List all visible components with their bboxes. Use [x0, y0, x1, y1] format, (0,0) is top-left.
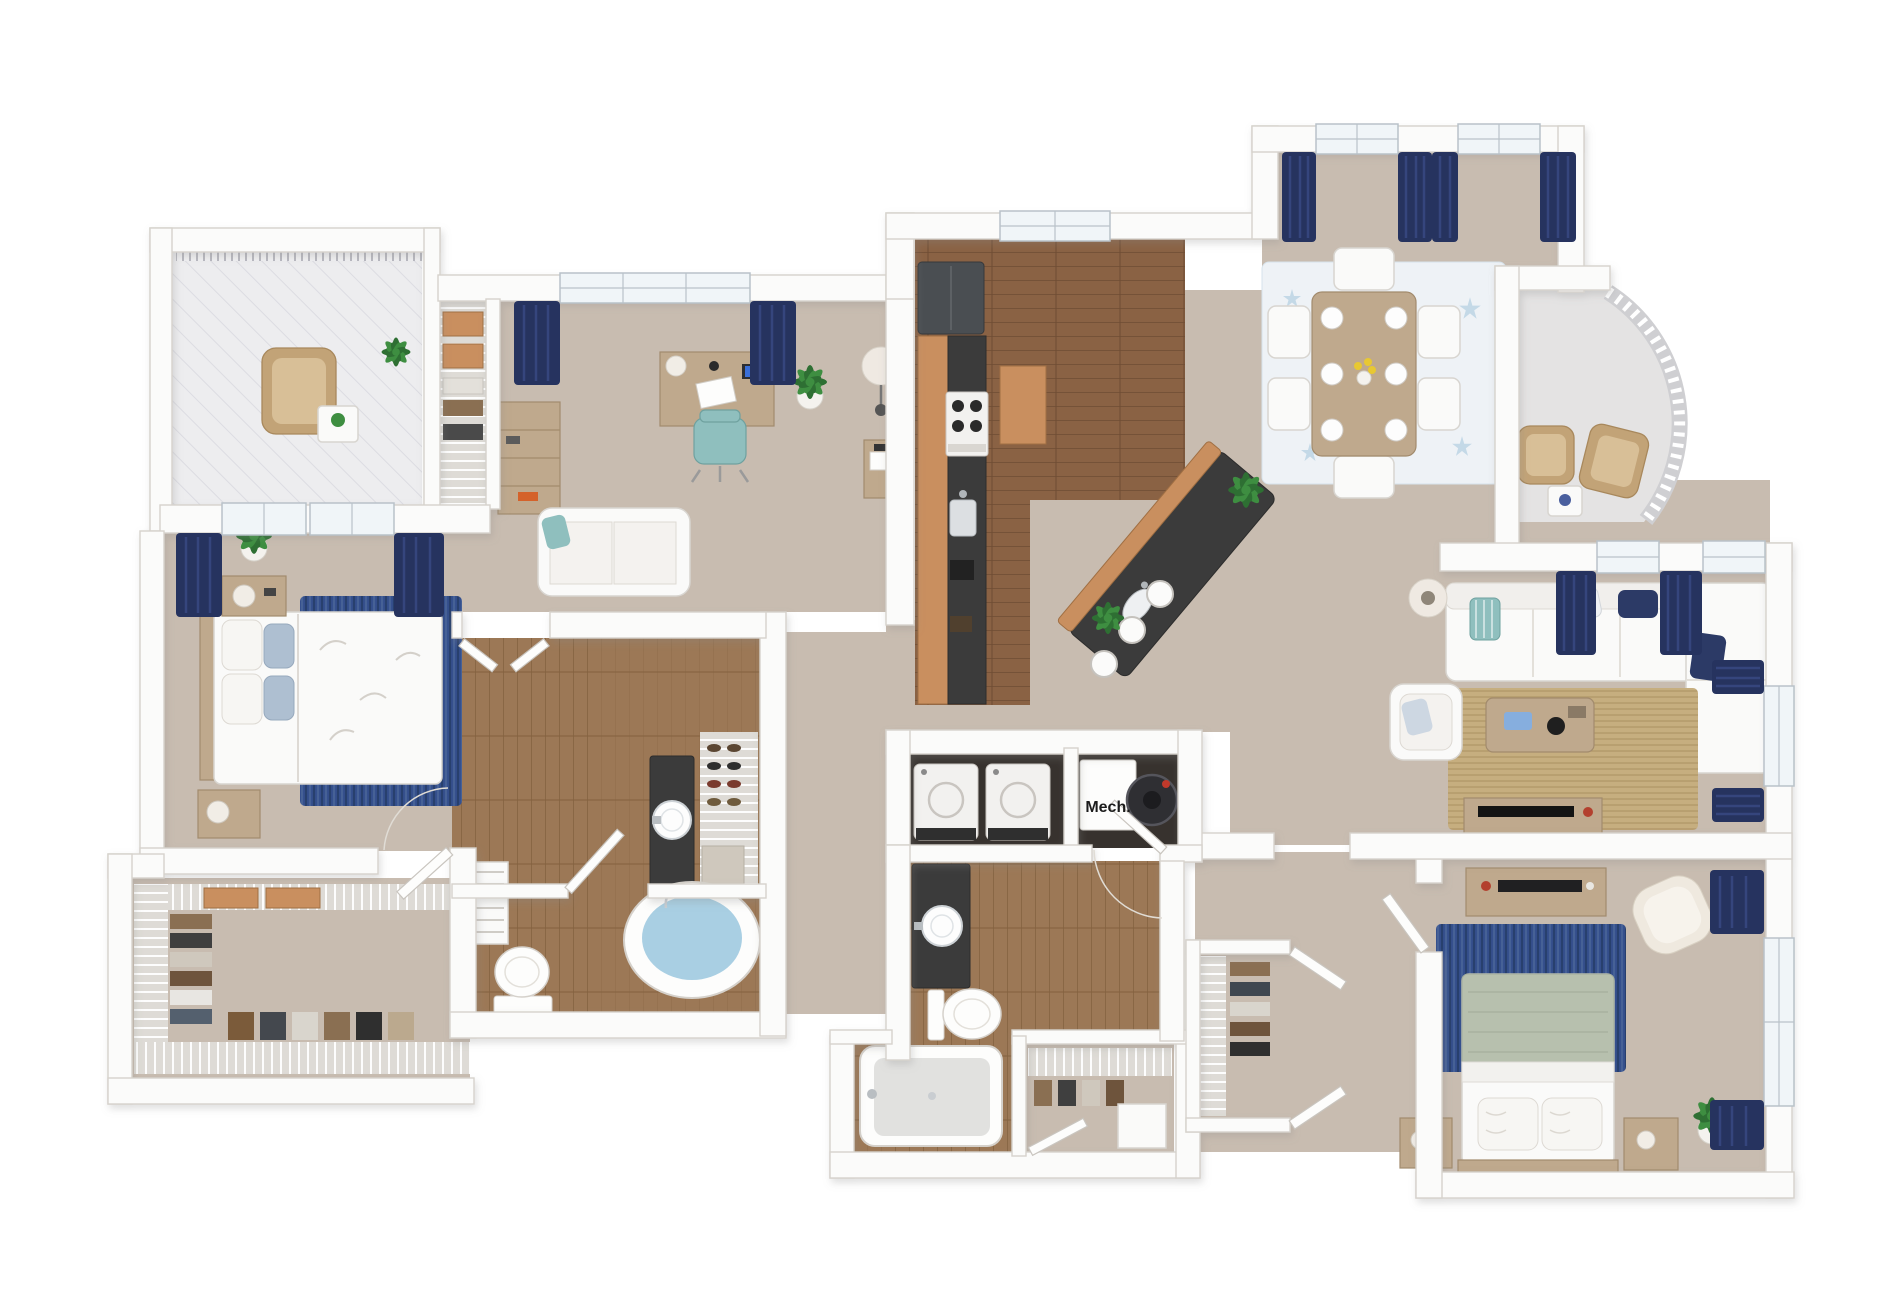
living-floor-lamp	[1409, 579, 1447, 617]
faucet	[652, 816, 661, 824]
island-plant-1	[1092, 602, 1124, 634]
office-window	[560, 273, 750, 303]
master-toilet	[494, 947, 552, 1014]
kitchen-window	[1000, 211, 1110, 241]
living-armchair	[1390, 684, 1462, 760]
patio-side-table	[318, 406, 358, 442]
master-vanity	[650, 756, 694, 898]
bedroom2-nightstand-2	[1624, 1118, 1678, 1170]
tv-console-living	[1464, 798, 1602, 834]
dining-window-2	[1458, 124, 1540, 154]
pantry-cabinet	[1000, 366, 1046, 444]
coffee-maker	[950, 560, 974, 580]
office-chair	[692, 410, 748, 482]
refrigerator	[918, 262, 984, 334]
bedroom2-headboard	[1458, 1160, 1618, 1172]
master-bed-group	[200, 596, 462, 806]
closet-cabinet	[1118, 1104, 1166, 1148]
kitchen-counter-run	[918, 336, 988, 704]
range	[946, 392, 988, 456]
counter-item	[950, 616, 972, 632]
wicker-chair-2	[1518, 426, 1574, 484]
living-window-2	[1703, 541, 1765, 573]
curved-balcony-table	[1548, 486, 1582, 516]
bath2-toilet	[928, 989, 1001, 1040]
bedroom2-dresser-tv	[1466, 868, 1606, 916]
balcony-plant	[382, 338, 411, 367]
apartment-floorplan-3d: Mech.	[0, 0, 1894, 1299]
linen-closet-shelves	[440, 301, 486, 503]
bath2-vanity	[912, 864, 970, 988]
garden-tub	[624, 882, 760, 998]
bedroom2-bed	[1458, 974, 1618, 1172]
floorplan-canvas: Mech.	[0, 0, 1894, 1299]
living-window-right	[1764, 686, 1794, 786]
bookcase	[498, 402, 560, 514]
bedroom2-window-right	[1764, 938, 1794, 1106]
bathtub-shower	[860, 1046, 1002, 1146]
dining-set	[1262, 248, 1506, 498]
washer	[914, 764, 978, 840]
dryer	[986, 764, 1050, 840]
island-plant-2	[1228, 472, 1264, 508]
faucet	[914, 922, 923, 930]
master-nightstand-1	[222, 576, 286, 616]
shoe-closet	[700, 732, 758, 898]
living-window-1	[1597, 541, 1659, 573]
dining-window-1	[1316, 124, 1398, 154]
loveseat	[538, 508, 690, 596]
labels: Mech.	[1085, 799, 1130, 816]
coffee-table	[1486, 698, 1594, 752]
mech-label: Mech.	[1085, 799, 1130, 816]
master-nightstand-2	[198, 790, 260, 838]
